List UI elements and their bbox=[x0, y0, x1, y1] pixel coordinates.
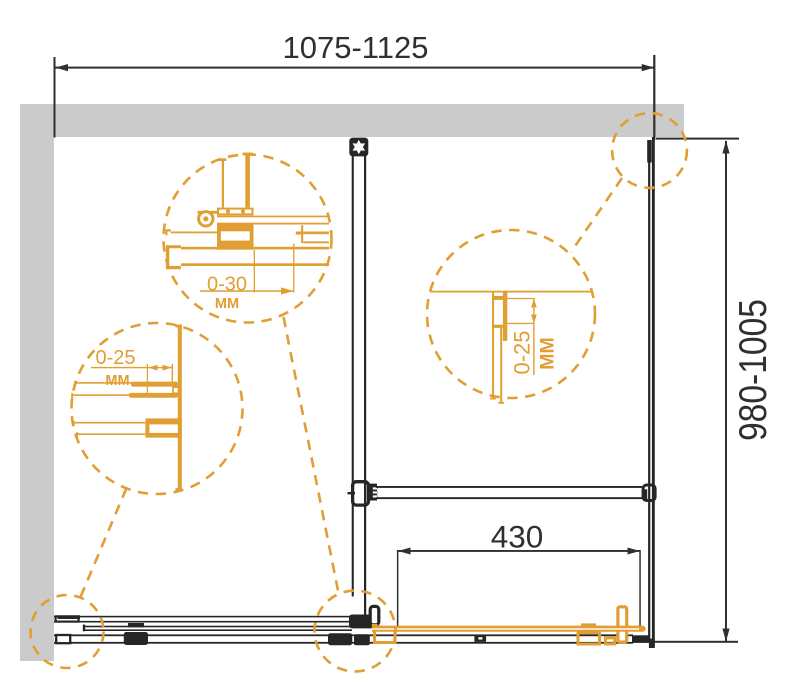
svg-text:0-25: 0-25 bbox=[95, 347, 135, 369]
svg-text:980-1005: 980-1005 bbox=[732, 299, 775, 441]
svg-text:0-25: 0-25 bbox=[510, 330, 535, 374]
svg-text:MM: MM bbox=[537, 337, 559, 370]
svg-text:MM: MM bbox=[105, 373, 129, 389]
svg-text:0-30: 0-30 bbox=[207, 274, 247, 296]
svg-text:430: 430 bbox=[491, 519, 544, 555]
svg-text:1075-1125: 1075-1125 bbox=[283, 30, 429, 65]
svg-text:MM: MM bbox=[215, 296, 239, 312]
